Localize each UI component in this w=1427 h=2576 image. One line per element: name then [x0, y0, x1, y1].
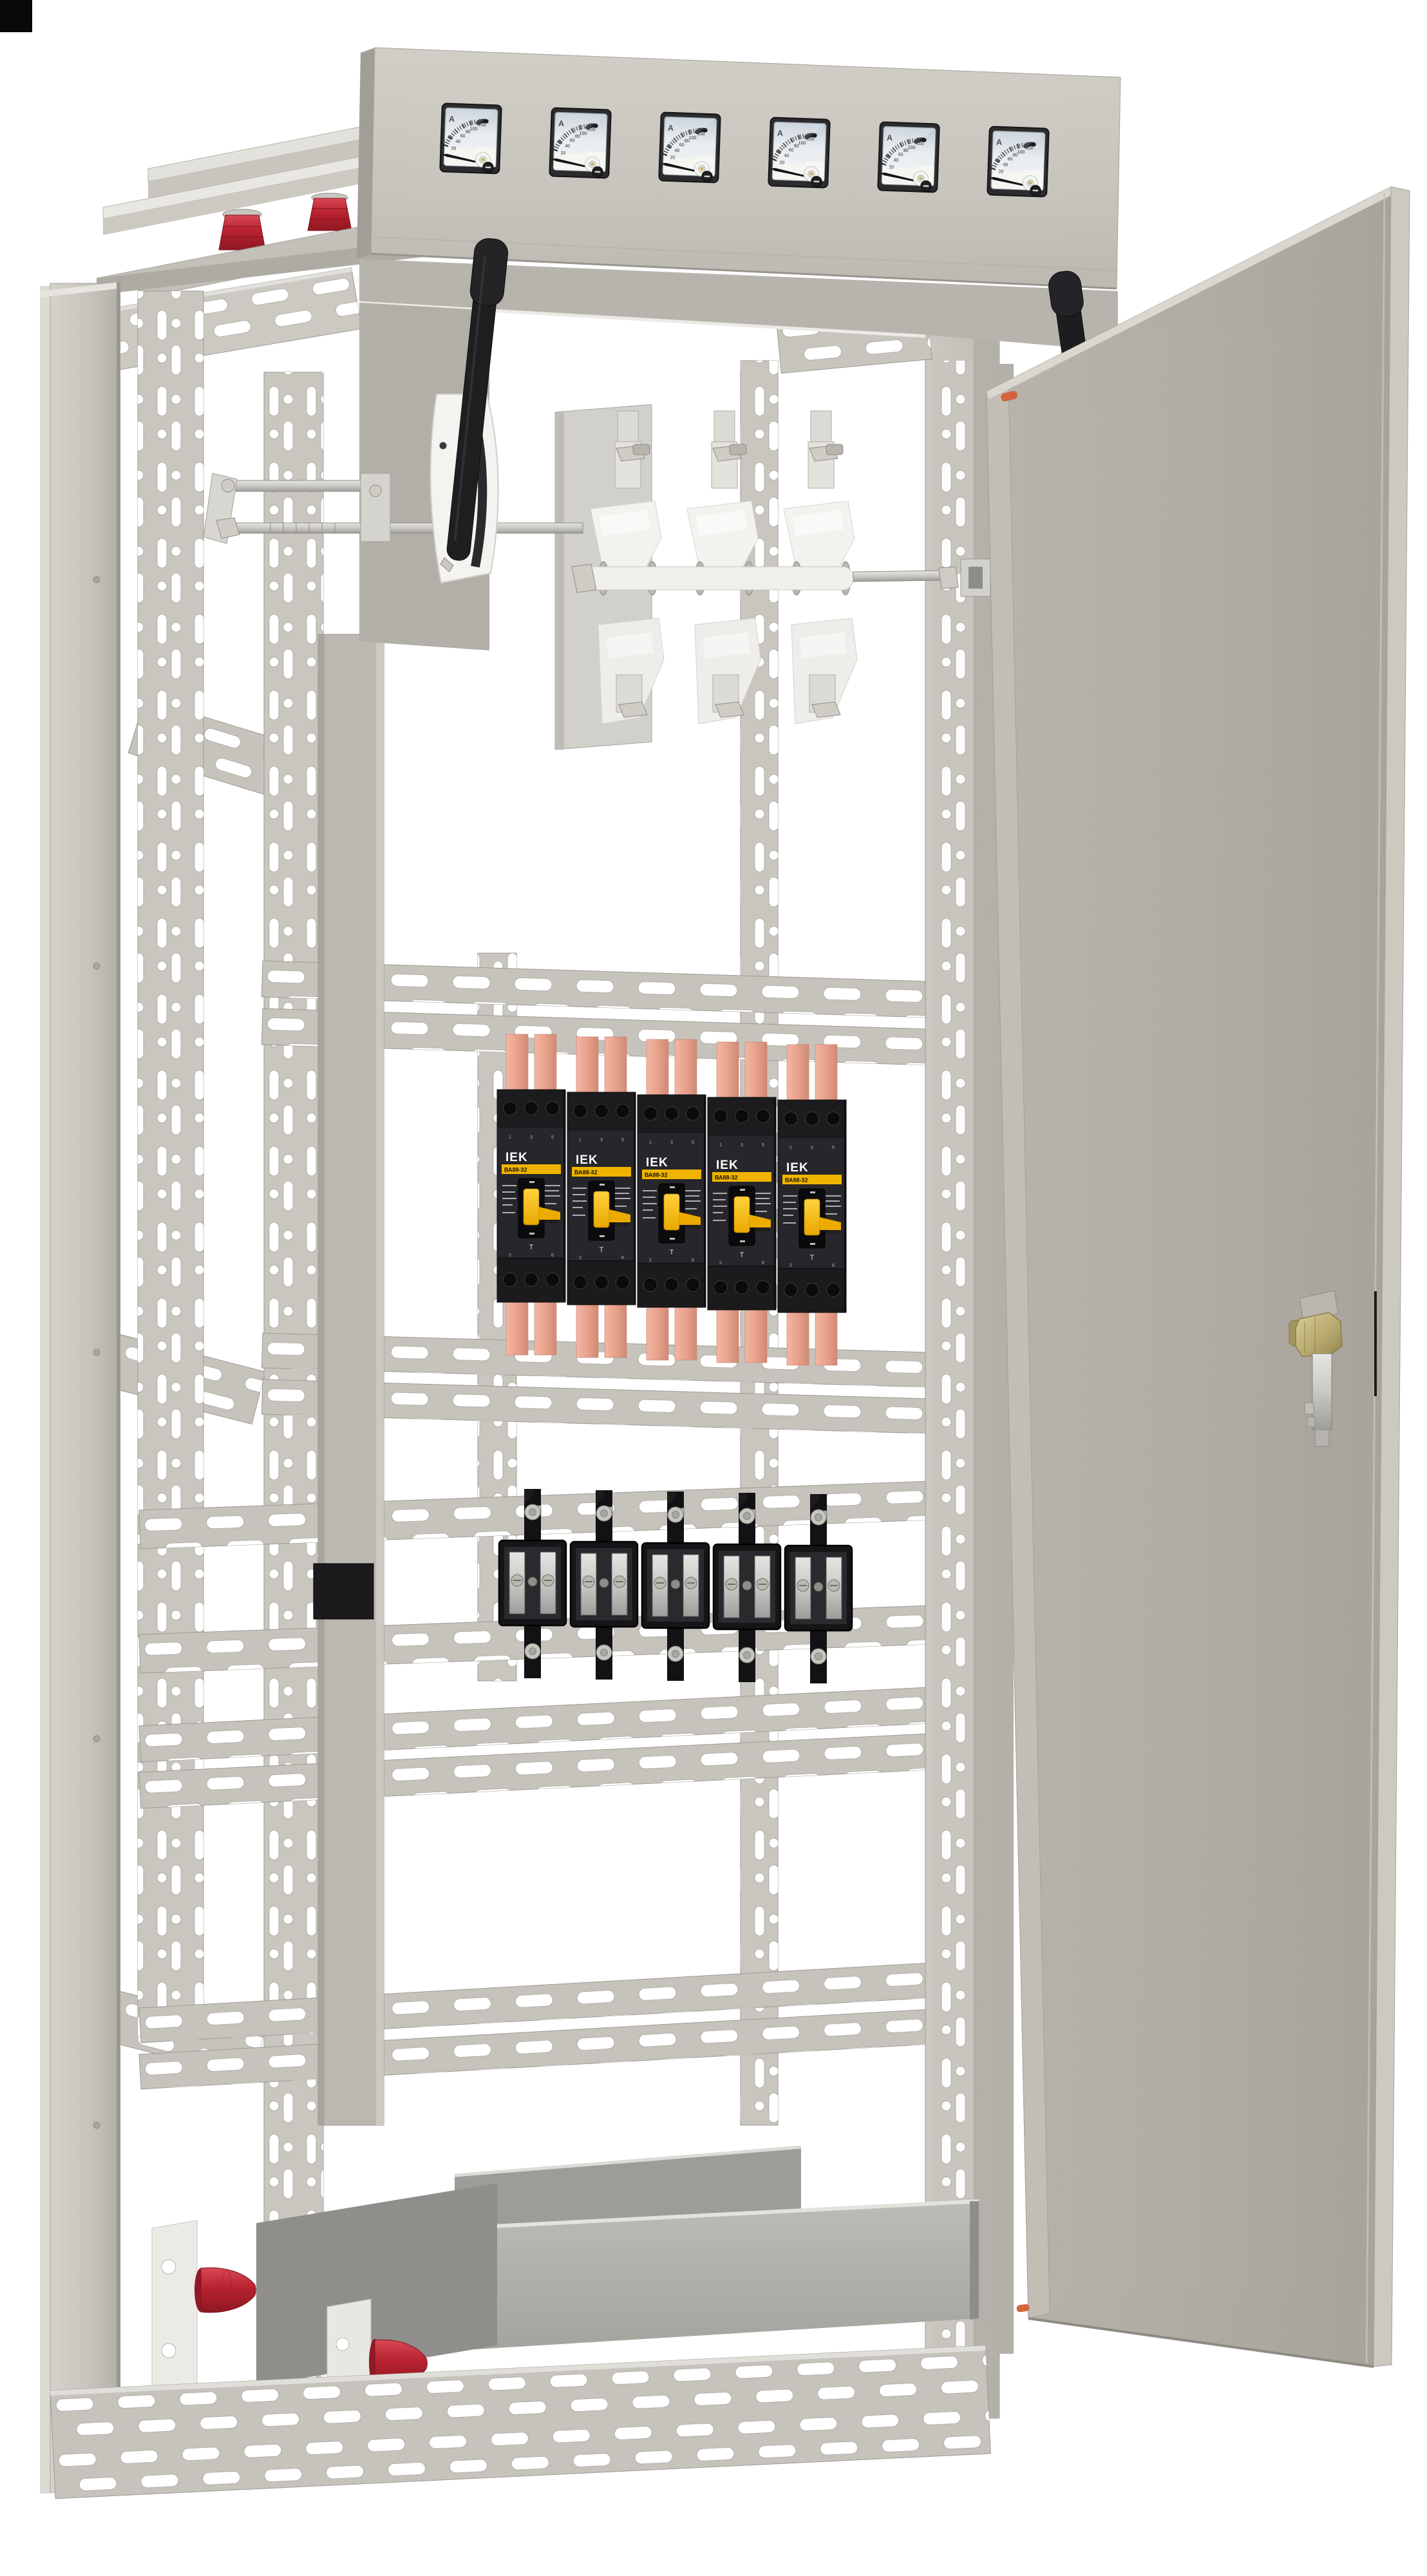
bracket-flange: [555, 412, 564, 750]
wall-outer-edge: [40, 286, 52, 2494]
ammeter-4: [768, 117, 830, 187]
latch-step: [1307, 1417, 1315, 1427]
ammeter-5: [878, 122, 940, 192]
linkage-rod-upper: [225, 480, 362, 491]
ammeter-6: [987, 126, 1049, 196]
ammeter-1: [440, 103, 502, 173]
lock-cylinder: [1296, 1312, 1342, 1356]
corner-mark: [0, 0, 32, 32]
plate-hole: [440, 442, 447, 450]
vertical-trunking: [318, 634, 384, 2125]
plate-hole: [162, 2260, 176, 2274]
door-seam-shadow: [1374, 1291, 1377, 1396]
meter-panel: [357, 39, 1133, 296]
linkage-bracket: [361, 473, 390, 542]
wall-face: [50, 283, 120, 2492]
lever-grip: [469, 237, 509, 307]
insulator-plate: [152, 2221, 197, 2398]
product-image: A 20 40 60 80 100 200 1 3 5: [0, 0, 1427, 2576]
post-texture: [925, 314, 999, 2418]
clevis-slot: [969, 567, 983, 589]
latch-tip: [1315, 1430, 1329, 1446]
ammeter-2: [549, 108, 611, 178]
switch-shaft: [580, 567, 853, 590]
door-assembly: [979, 180, 1417, 2370]
linkage-rod-threaded: [235, 523, 583, 533]
tray-side: [970, 2201, 979, 2320]
linkage-bolt: [370, 485, 381, 497]
wall-inner-shadow: [117, 282, 120, 2492]
door-texture: [979, 180, 1417, 2370]
drive-rod: [853, 571, 950, 582]
ammeter-3: [659, 112, 721, 182]
rod-nut: [939, 567, 958, 589]
right-frame-post: [925, 303, 999, 2418]
plate-hole: [336, 2338, 349, 2351]
aux-black-box: [314, 1564, 373, 1619]
left-wall: [40, 282, 120, 2494]
latch-step: [1305, 1403, 1314, 1414]
plate-hole: [162, 2344, 176, 2358]
red-insulator: [308, 198, 352, 231]
red-insulator: [219, 215, 265, 250]
linkage-bolt: [222, 479, 234, 492]
